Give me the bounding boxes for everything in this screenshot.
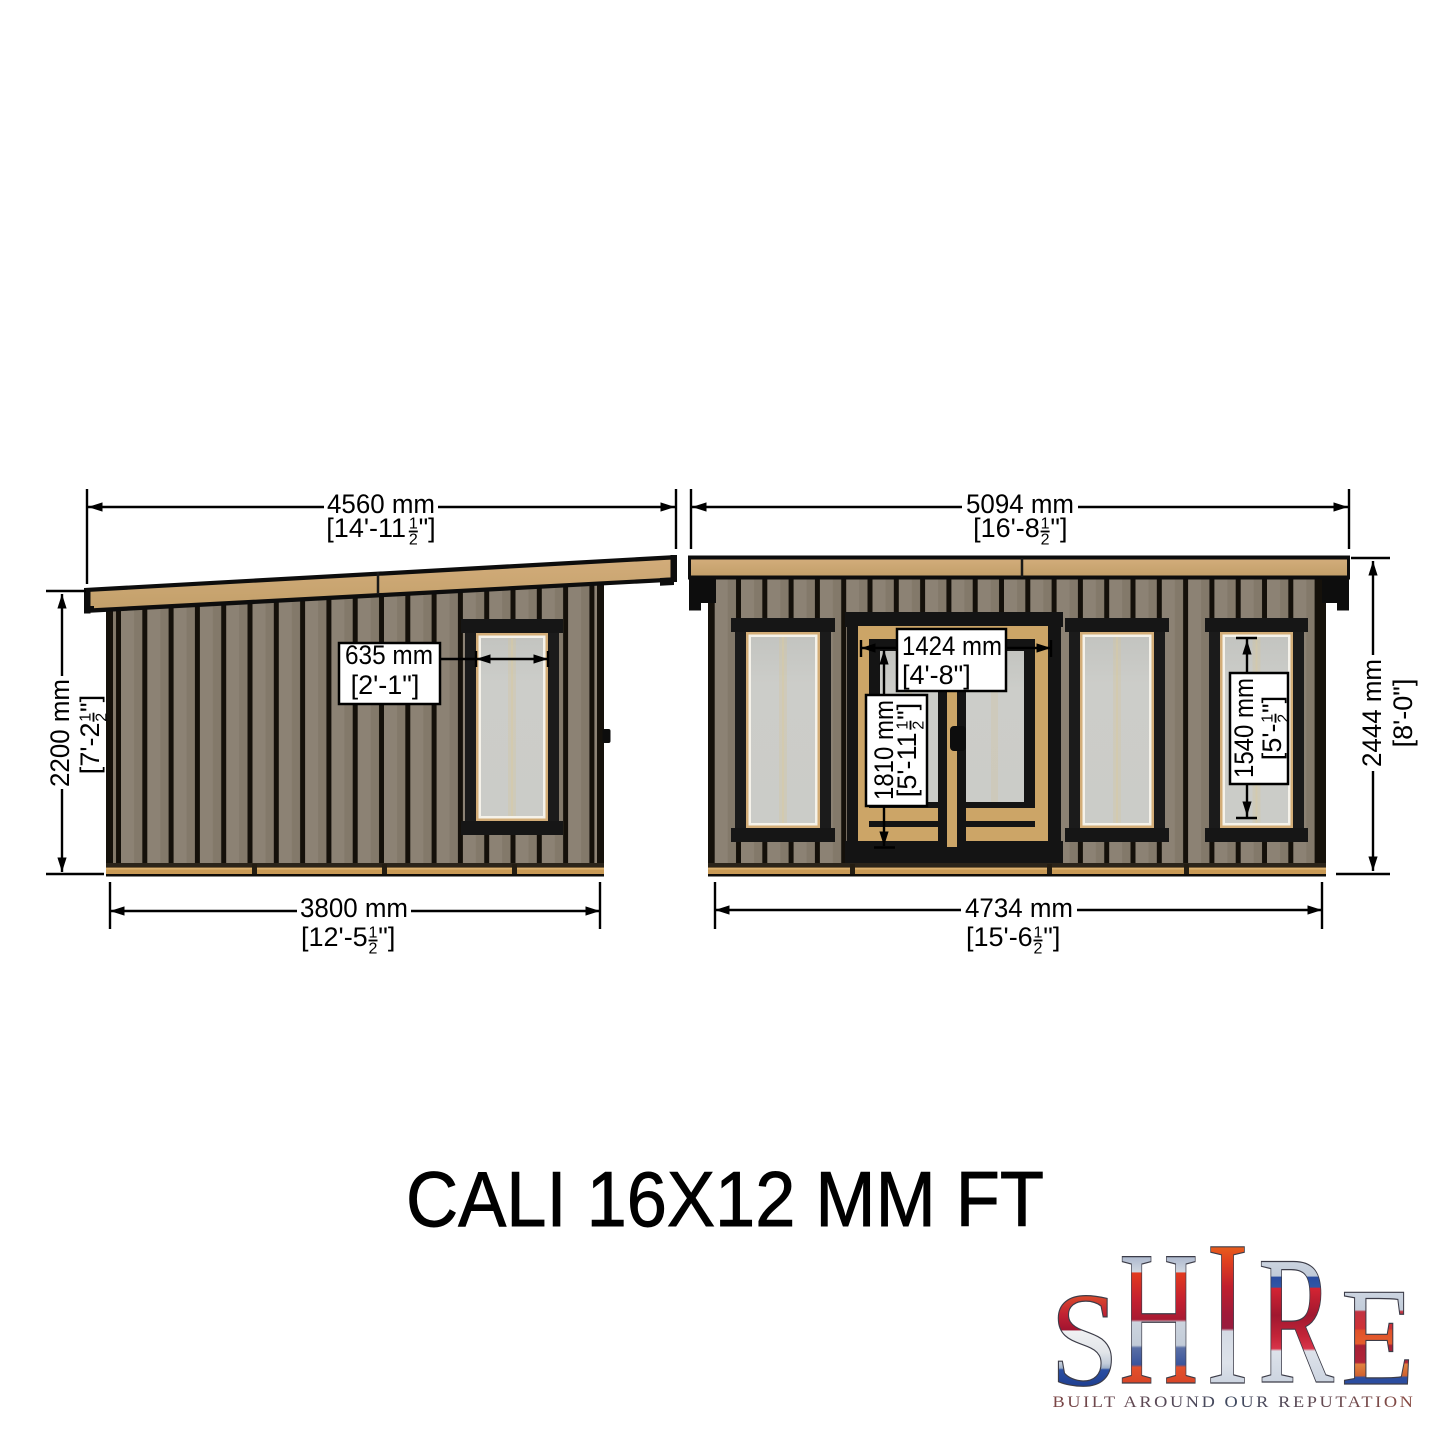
svg-text:H: H bbox=[1119, 1211, 1198, 1425]
svg-text:[2'-1"]: [2'-1"] bbox=[351, 670, 420, 700]
svg-text:2: 2 bbox=[1276, 714, 1293, 723]
svg-text:[7'-2: [7'-2 bbox=[75, 723, 105, 775]
svg-text:[5'-: [5'- bbox=[1257, 724, 1287, 761]
svg-text:[15'-6: [15'-6 bbox=[966, 922, 1033, 952]
svg-text:3800 mm: 3800 mm bbox=[300, 893, 408, 923]
svg-text:635 mm: 635 mm bbox=[345, 640, 433, 670]
svg-text:[16'-8: [16'-8 bbox=[973, 513, 1040, 543]
svg-text:1: 1 bbox=[1260, 714, 1277, 723]
svg-text:2: 2 bbox=[1041, 532, 1050, 549]
svg-text:2: 2 bbox=[409, 532, 418, 549]
svg-text:1: 1 bbox=[895, 721, 912, 730]
svg-text:"]: "] bbox=[892, 703, 922, 720]
svg-text:"]: "] bbox=[1050, 513, 1067, 543]
svg-text:E: E bbox=[1341, 1261, 1415, 1415]
svg-text:BUILT AROUND OUR REPUTATION: BUILT AROUND OUR REPUTATION bbox=[1053, 1394, 1416, 1411]
svg-text:CALI 16X12 MM FT: CALI 16X12 MM FT bbox=[406, 1155, 1044, 1243]
svg-text:[8'-0"]: [8'-0"] bbox=[1388, 679, 1418, 748]
svg-text:"]: "] bbox=[1257, 696, 1287, 713]
svg-text:1: 1 bbox=[1034, 925, 1043, 942]
svg-text:2: 2 bbox=[94, 713, 111, 722]
svg-text:[5'-11: [5'-11 bbox=[892, 732, 922, 797]
svg-text:"]: "] bbox=[419, 513, 436, 543]
svg-text:2444 mm: 2444 mm bbox=[1357, 659, 1387, 767]
svg-text:1: 1 bbox=[1041, 516, 1050, 533]
svg-text:2: 2 bbox=[1034, 941, 1043, 958]
svg-text:"]: "] bbox=[75, 695, 105, 712]
svg-text:1: 1 bbox=[409, 516, 418, 533]
svg-text:[14'-11: [14'-11 bbox=[326, 513, 406, 543]
svg-text:"]: "] bbox=[378, 922, 395, 952]
svg-text:2200 mm: 2200 mm bbox=[45, 679, 75, 787]
svg-text:[12'-5: [12'-5 bbox=[301, 922, 368, 952]
svg-text:1424 mm: 1424 mm bbox=[902, 631, 1002, 661]
svg-text:2: 2 bbox=[911, 721, 928, 730]
svg-text:1: 1 bbox=[369, 925, 378, 942]
svg-text:S: S bbox=[1050, 1265, 1119, 1415]
svg-text:4734 mm: 4734 mm bbox=[965, 893, 1073, 923]
svg-text:"]: "] bbox=[1043, 922, 1060, 952]
svg-text:2: 2 bbox=[369, 941, 378, 958]
svg-text:[4'-8"]: [4'-8"] bbox=[902, 660, 971, 690]
svg-text:1540 mm: 1540 mm bbox=[1229, 678, 1259, 778]
svg-text:1: 1 bbox=[78, 713, 95, 722]
svg-text:R: R bbox=[1258, 1220, 1334, 1423]
